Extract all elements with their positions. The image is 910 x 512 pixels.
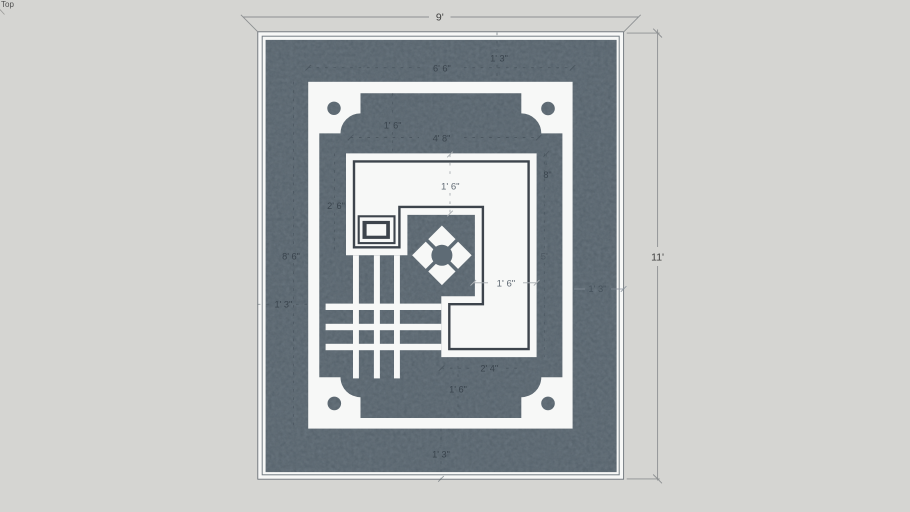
svg-text:1' 6": 1' 6" [449, 384, 467, 394]
svg-text:1' 3": 1' 3" [588, 283, 606, 294]
svg-text:4' 8": 4' 8" [433, 134, 451, 144]
svg-text:1' 6": 1' 6" [497, 278, 516, 289]
svg-text:5': 5' [541, 252, 548, 263]
svg-text:9': 9' [436, 12, 444, 24]
svg-text:2' 4": 2' 4" [480, 364, 498, 374]
svg-text:11': 11' [651, 252, 664, 264]
svg-text:8' 6": 8' 6" [282, 251, 300, 261]
svg-text:1' 6": 1' 6" [441, 181, 460, 192]
svg-text:6' 6": 6' 6" [433, 64, 451, 74]
svg-text:2' 6": 2' 6" [327, 201, 345, 211]
svg-text:1' 6": 1' 6" [384, 120, 402, 130]
svg-text:1' 3": 1' 3" [490, 53, 508, 63]
svg-text:1' 3": 1' 3" [275, 300, 293, 310]
svg-text:Top: Top [1, 0, 14, 9]
svg-text:1' 3": 1' 3" [432, 450, 450, 460]
